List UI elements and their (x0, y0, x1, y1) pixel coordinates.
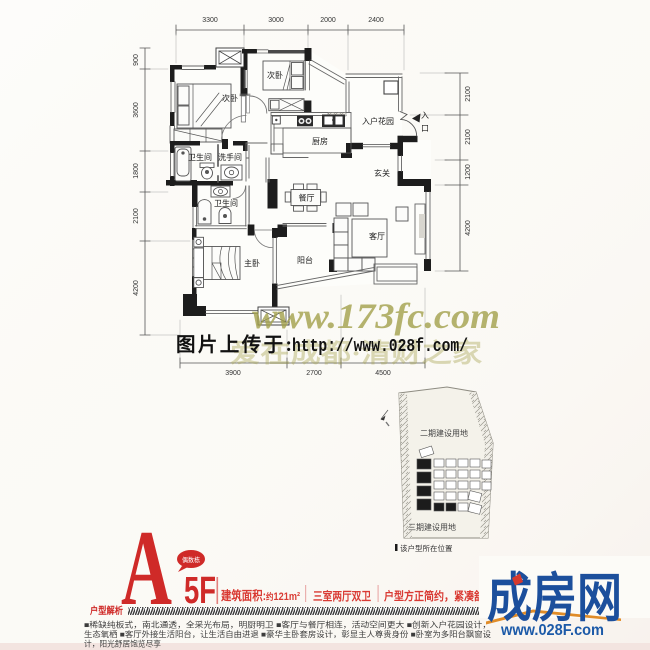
svg-text:■稀缺纯板式，南北通透，全采光布局，明厨明卫 ■客厅与餐厅相: ■稀缺纯板式，南北通透，全采光布局，明厨明卫 ■客厅与餐厅相连，活动空间更大 ■… (84, 620, 491, 630)
svg-text:二期建设用地: 二期建设用地 (420, 428, 468, 438)
svg-text:该户型所在位置: 该户型所在位置 (400, 543, 453, 553)
svg-text:http://www.028f.com/: http://www.028f.com/ (292, 337, 468, 357)
svg-text:建筑面积:约121m²: 建筑面积:约121m² (221, 588, 300, 603)
svg-text:成房网: 成房网 (487, 569, 622, 628)
svg-text:入户花园: 入户花园 (362, 116, 394, 126)
svg-text:生态氧栖 ■客厅外接生活阳台，让生活自由进退 ■豪华主卧套房: 生态氧栖 ■客厅外接生活阳台，让生活自由进退 ■豪华主卧套房设计，彰显主人尊贵身… (84, 629, 491, 639)
svg-text:三期建设用地: 三期建设用地 (408, 522, 456, 532)
svg-text:4500: 4500 (375, 370, 391, 377)
svg-text:厨房: 厨房 (312, 136, 328, 146)
svg-text:卫生间: 卫生间 (188, 152, 212, 162)
svg-text:卫生间: 卫生间 (214, 198, 238, 208)
svg-text:4200: 4200 (465, 220, 472, 236)
svg-text:户型解析: 户型解析 (89, 605, 123, 617)
svg-text:3600: 3600 (133, 102, 140, 118)
svg-text:2100: 2100 (133, 208, 140, 224)
svg-text:3000: 3000 (268, 17, 284, 24)
svg-text:三室两厅双卫: 三室两厅双卫 (313, 589, 371, 603)
svg-text:口: 口 (421, 124, 429, 133)
svg-text:图片上传于:: 图片上传于: (176, 333, 292, 356)
svg-text:1200: 1200 (465, 164, 472, 180)
svg-text:2000: 2000 (320, 17, 336, 24)
svg-text:1800: 1800 (133, 163, 140, 179)
svg-text:偶数栋: 偶数栋 (182, 555, 200, 564)
svg-text:www.173fc.com: www.173fc.com (252, 296, 500, 336)
svg-text:2100: 2100 (465, 129, 472, 145)
svg-text:900: 900 (133, 54, 140, 66)
svg-text:户型方正简约，紧凑舒: 户型方正简约，紧凑舒 (384, 589, 484, 603)
svg-text:客厅: 客厅 (369, 231, 385, 241)
svg-text:5F: 5F (184, 570, 216, 612)
svg-text:计，阳光舒居饱览尽享: 计，阳光舒居饱览尽享 (84, 639, 161, 649)
svg-text:玄关: 玄关 (374, 168, 390, 178)
svg-text:3300: 3300 (202, 17, 218, 24)
svg-text:阳台: 阳台 (297, 255, 313, 265)
svg-text:2100: 2100 (465, 86, 472, 102)
svg-text:3900: 3900 (225, 370, 241, 377)
svg-text:次卧: 次卧 (267, 70, 283, 80)
svg-text:洗手间: 洗手间 (218, 152, 242, 162)
svg-text:主卧: 主卧 (244, 258, 260, 268)
svg-text:次卧: 次卧 (222, 93, 238, 103)
svg-text:4200: 4200 (133, 280, 140, 296)
svg-text:2700: 2700 (306, 370, 322, 377)
svg-text:餐厅: 餐厅 (299, 194, 315, 203)
svg-text:www.028F.com: www.028F.com (500, 622, 604, 639)
svg-text:2400: 2400 (368, 17, 384, 24)
svg-text:入: 入 (421, 111, 429, 120)
